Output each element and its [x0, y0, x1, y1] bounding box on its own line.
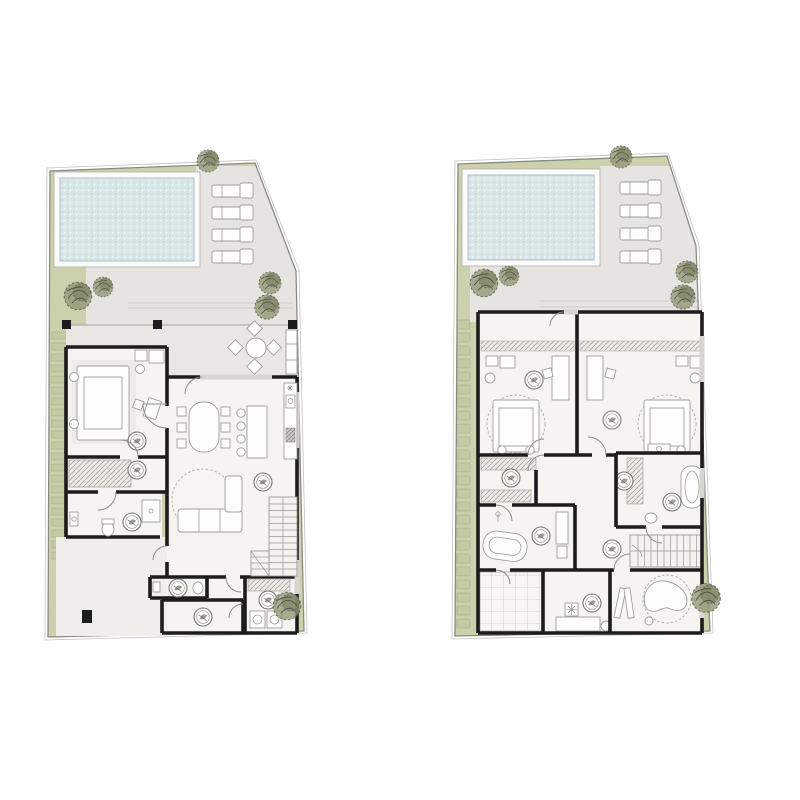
- closet-shelving: [480, 572, 543, 631]
- toilet: [645, 513, 657, 523]
- tree-icon: [499, 266, 519, 286]
- potted-plant-icon: [254, 473, 272, 491]
- wardrobe: [481, 490, 531, 502]
- tree-icon: [197, 150, 219, 172]
- potted-plant-icon: [603, 540, 621, 558]
- toilet: [193, 582, 203, 594]
- tree-icon: [610, 146, 632, 168]
- tree-icon: [259, 272, 281, 294]
- dining-set: [177, 402, 230, 452]
- toilet: [102, 519, 114, 536]
- wardrobe: [580, 341, 701, 351]
- kitchen-counter: [284, 383, 297, 459]
- chair: [542, 368, 553, 379]
- right-floor-plan: [445, 145, 725, 645]
- potted-plant-icon: [502, 469, 520, 487]
- tree-icon: [93, 277, 113, 297]
- chair: [605, 368, 616, 379]
- sink: [70, 512, 78, 526]
- potted-plant-icon: [583, 594, 601, 612]
- tree-icon: [64, 282, 92, 310]
- bed: [493, 400, 539, 454]
- lounger-icon: [620, 180, 661, 195]
- wardrobe: [248, 579, 290, 591]
- floor-plan-canvas: [0, 0, 800, 800]
- potted-plant-icon: [532, 527, 550, 545]
- side-table: [556, 617, 600, 631]
- tree-icon: [255, 295, 279, 319]
- tree-icon: [692, 584, 721, 613]
- tree-icon: [470, 269, 498, 297]
- lounger-icon: [212, 227, 253, 242]
- shower: [142, 500, 160, 522]
- right-stepping-path: [456, 318, 472, 630]
- lounger-icon: [620, 226, 661, 241]
- potted-plant-icon: [603, 411, 621, 429]
- potted-plant-icon: [525, 371, 543, 389]
- sink: [153, 582, 160, 592]
- potted-plant-icon: [128, 432, 146, 450]
- potted-plant-icon: [663, 493, 681, 511]
- potted-plant-icon: [128, 461, 146, 479]
- wardrobe: [481, 341, 574, 351]
- washer: [250, 611, 265, 628]
- bench: [486, 356, 498, 366]
- potted-plant-icon: [194, 608, 212, 626]
- floor-plans-drawing: [0, 0, 800, 800]
- lounger-icon: [212, 183, 253, 198]
- lounger-icon: [212, 205, 253, 220]
- bench: [500, 356, 515, 368]
- lounger-icon: [620, 203, 661, 218]
- right-staircase: [630, 535, 702, 567]
- lounger-icon: [620, 249, 661, 264]
- desk: [587, 356, 603, 400]
- tree-icon: [676, 261, 698, 283]
- vanity: [556, 512, 568, 544]
- right-swimming-pool: [468, 175, 594, 260]
- bed: [70, 366, 130, 440]
- bench: [676, 356, 688, 366]
- lounger-icon: [212, 249, 253, 264]
- desk: [552, 356, 569, 400]
- left-swimming-pool: [60, 178, 194, 261]
- tree-icon: [671, 285, 695, 309]
- tree-icon: [273, 592, 301, 620]
- potted-plant-icon: [169, 579, 187, 597]
- wardrobe: [69, 460, 131, 487]
- potted-plant-icon: [123, 513, 141, 531]
- left-floor-plan: [40, 150, 320, 650]
